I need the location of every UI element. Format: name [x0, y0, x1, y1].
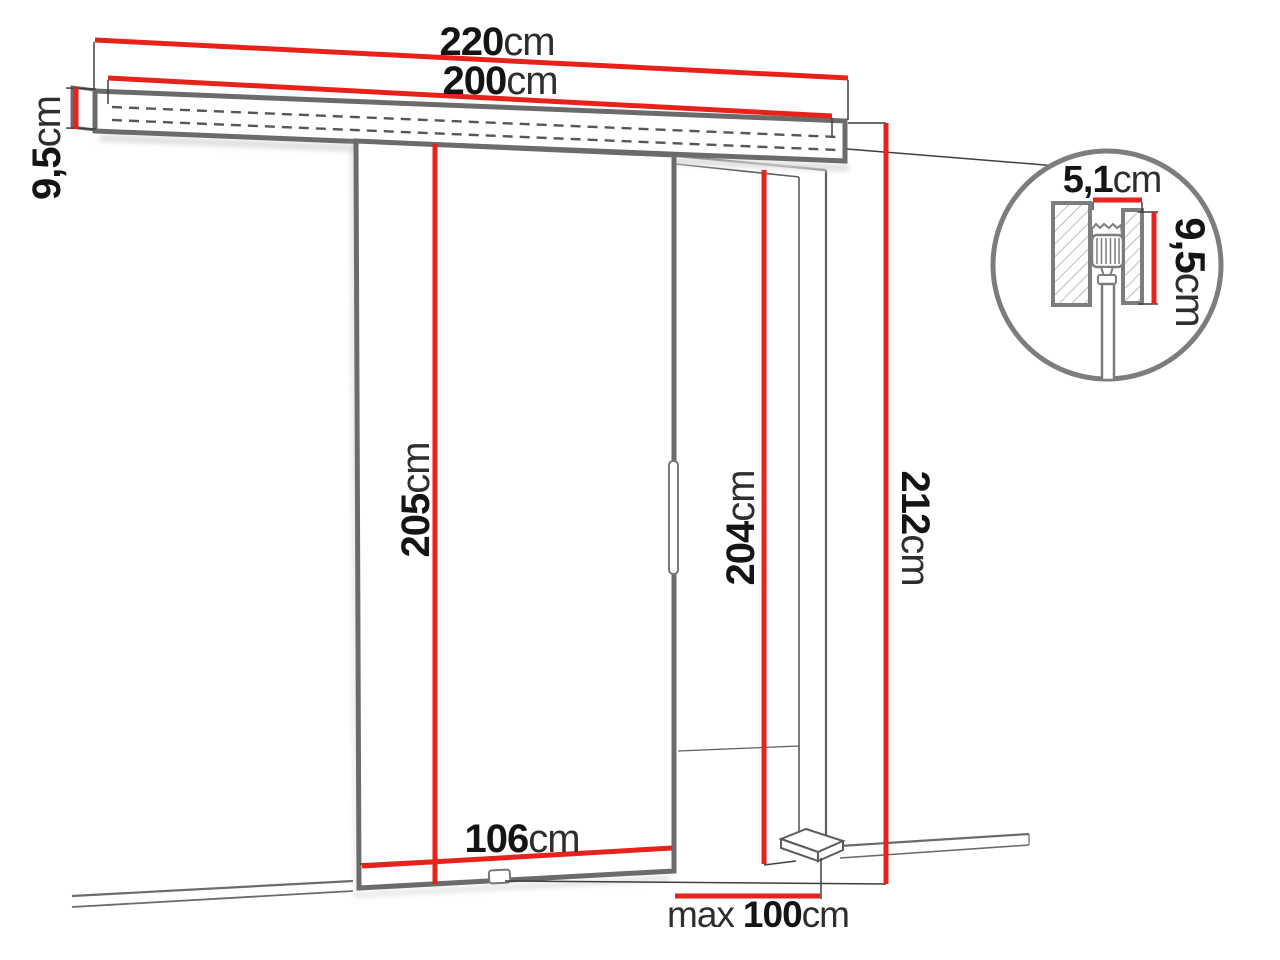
label-door-width: 106cm: [464, 817, 579, 861]
opening-floor-line: [678, 746, 799, 751]
roller-collar: [1098, 275, 1116, 284]
label-rail-track-width: 200cm: [442, 59, 557, 103]
ext-rail-height-top-tick: [66, 88, 96, 89]
ext-204-bottom-tick: [764, 861, 796, 865]
ext-rail-height-bottom-tick: [66, 128, 96, 129]
right-baseboard-top-line: [840, 834, 1029, 846]
detail-wall-hatch: [1055, 205, 1088, 303]
label-opening-height: 204cm: [719, 470, 763, 585]
label-door-height: 205cm: [394, 442, 438, 557]
label-rail-height: 9,5cm: [25, 96, 69, 200]
right-baseboard-bottom-line: [840, 845, 1029, 858]
detail-door-hatch: [1125, 212, 1140, 301]
label-rail-total-width: 220cm: [439, 20, 554, 64]
label-overall-height: 212cm: [893, 470, 937, 585]
door-handle: [669, 461, 678, 574]
sliding-door-dimension-diagram: 220cm 200cm 9,5cm 205cm 204cm 212cm 106c…: [0, 0, 1280, 960]
label-opening-width: max100cm: [667, 894, 849, 935]
door-profile-bar: [1102, 284, 1114, 380]
diagram-canvas: 220cm 200cm 9,5cm 205cm 204cm 212cm 106c…: [0, 0, 1280, 960]
label-detail-height: 9,5cm: [1167, 217, 1214, 326]
detail-leader-line: [847, 149, 1057, 166]
label-detail-depth: 5,1cm: [1063, 159, 1161, 201]
